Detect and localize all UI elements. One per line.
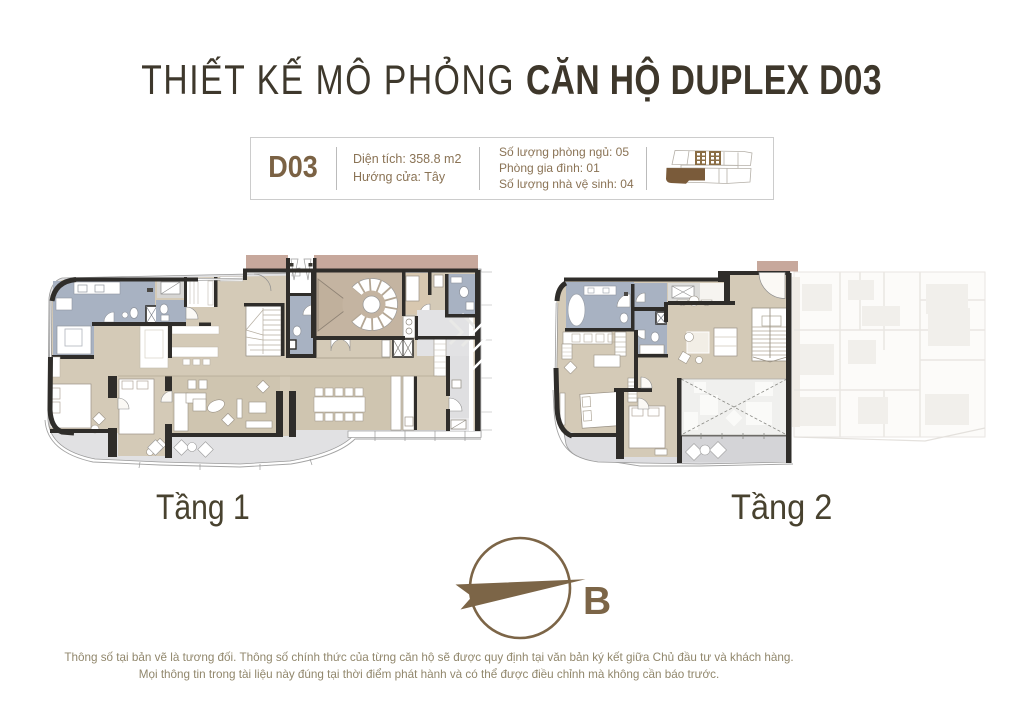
svg-text:B: B [583, 580, 611, 623]
